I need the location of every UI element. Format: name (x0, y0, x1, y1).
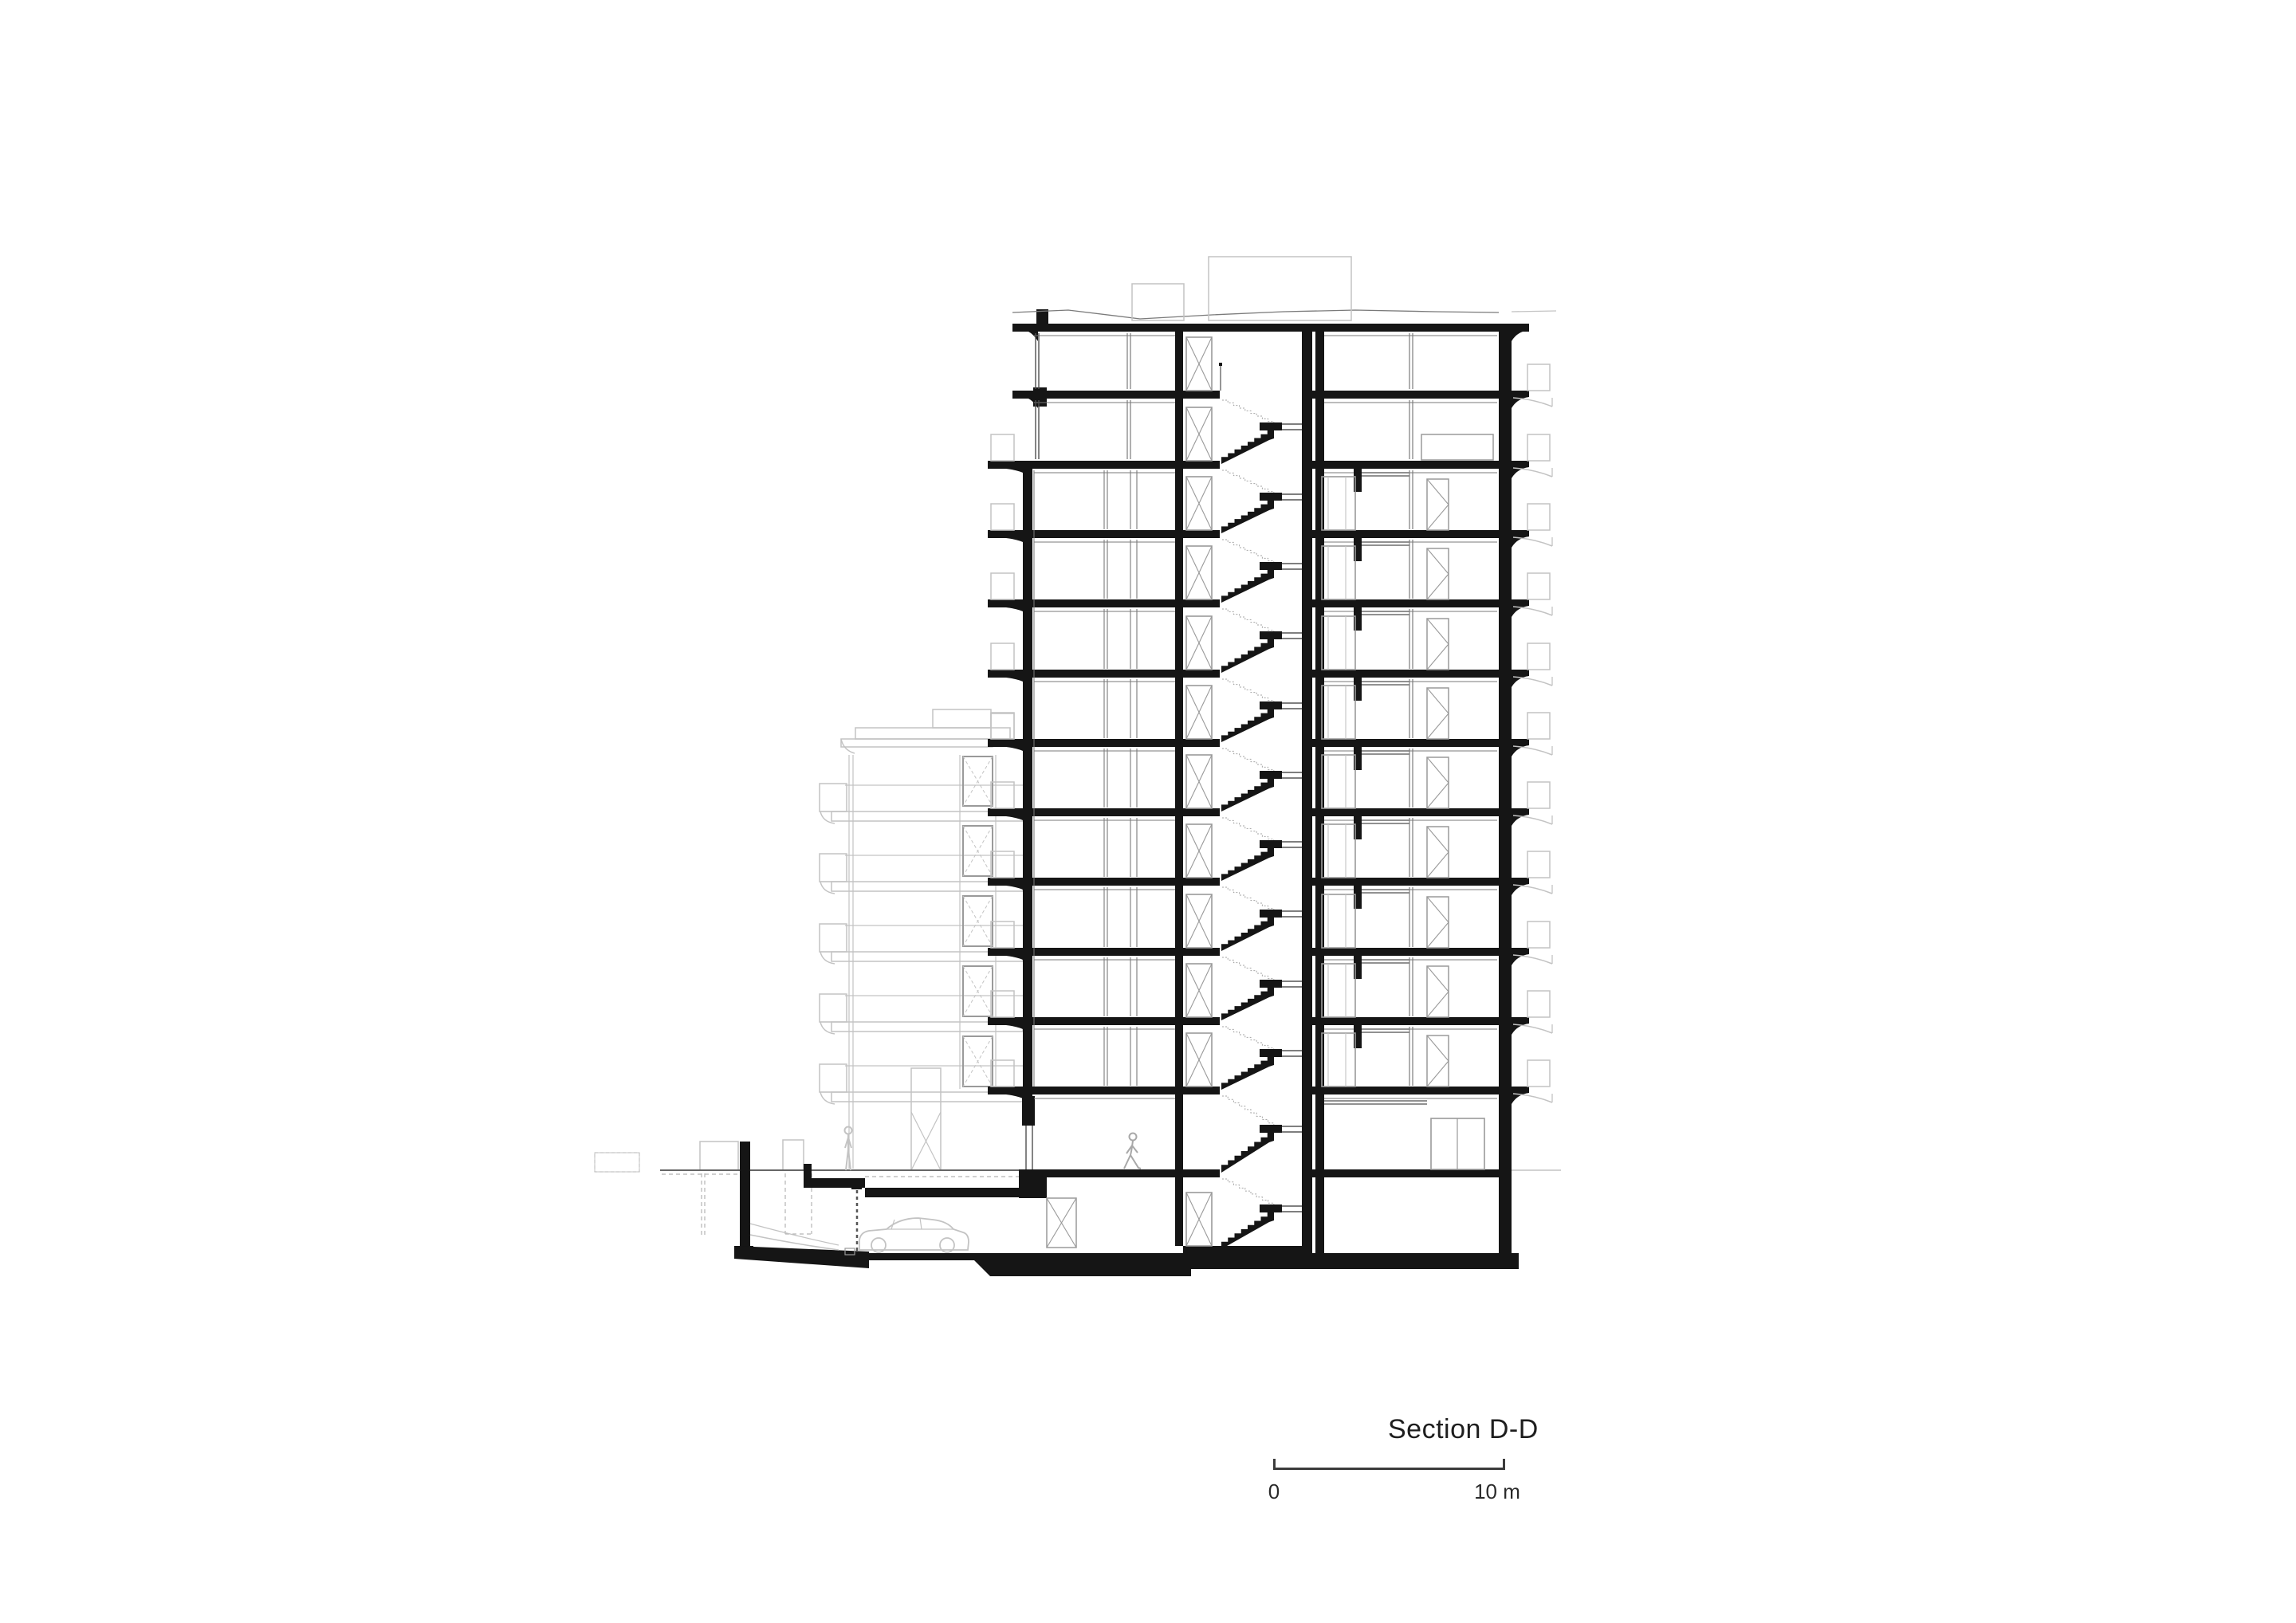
scale-bar-tick-left (1273, 1459, 1276, 1470)
scale-max-label: 10 m (1465, 1480, 1529, 1504)
drawing-sheet: Section D-D 0 10 m (0, 0, 2296, 1623)
tower-structure (988, 257, 1556, 1253)
stair-core (1186, 337, 1302, 1249)
scale-bar-tick-right (1503, 1459, 1505, 1470)
scale-zero-label: 0 (1260, 1480, 1288, 1504)
ghost-building (595, 709, 1023, 1172)
parking-podium (660, 1142, 1561, 1268)
person-figures (845, 1127, 1142, 1171)
section-title: Section D-D (1388, 1414, 1539, 1445)
car-silhouette (859, 1218, 969, 1252)
section-drawing (0, 0, 2296, 1623)
scale-bar-line (1274, 1468, 1505, 1470)
